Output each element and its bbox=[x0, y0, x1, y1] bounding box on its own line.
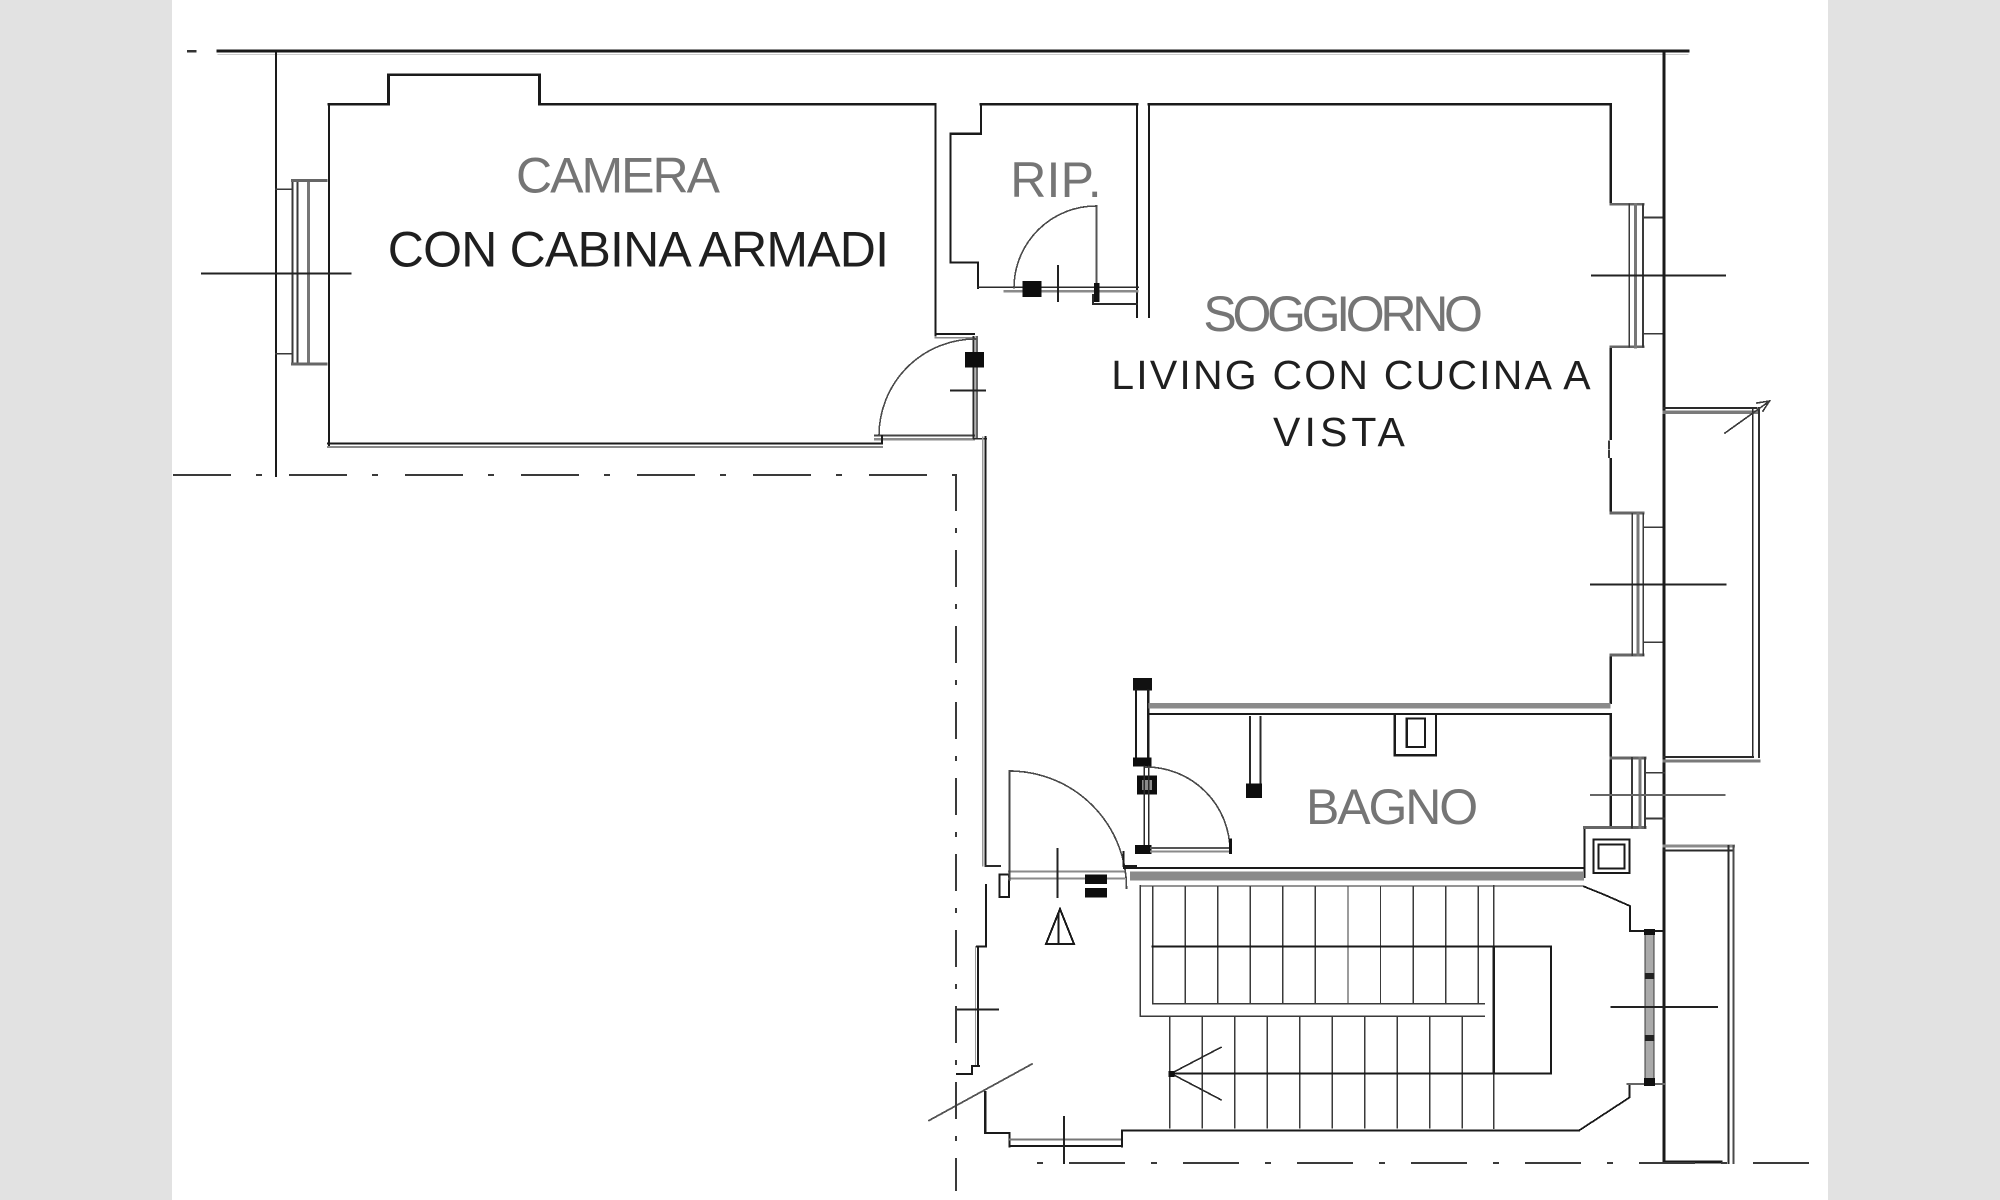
svg-text:CON CABINA ARMADI: CON CABINA ARMADI bbox=[388, 222, 888, 278]
svg-text:BAGNO: BAGNO bbox=[1306, 779, 1476, 835]
svg-text:CAMERA: CAMERA bbox=[516, 148, 721, 204]
svg-text:RIP.: RIP. bbox=[1010, 152, 1102, 208]
svg-text:VISTA: VISTA bbox=[1273, 409, 1409, 455]
svg-text:LIVING CON CUCINA A: LIVING CON CUCINA A bbox=[1111, 352, 1593, 398]
svg-text:SOGGIORNO: SOGGIORNO bbox=[1203, 286, 1481, 342]
